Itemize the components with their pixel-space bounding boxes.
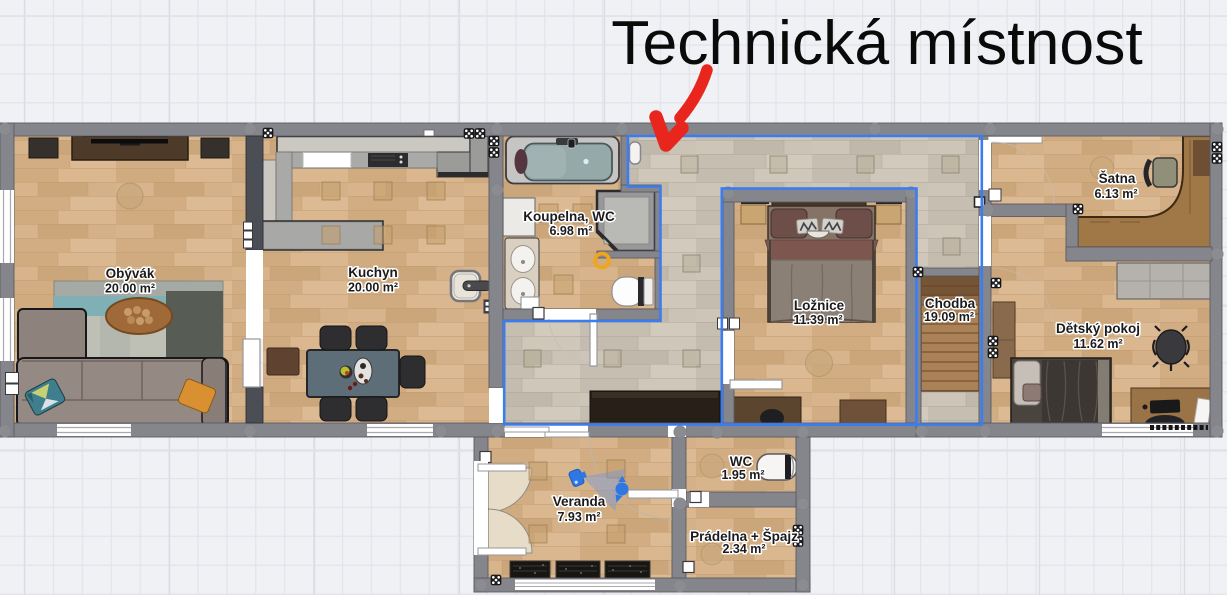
svg-text:11.62 m²: 11.62 m² [1073, 337, 1122, 351]
svg-text:Koupelna, WC: Koupelna, WC [523, 209, 615, 224]
svg-text:20.00 m²: 20.00 m² [348, 281, 398, 295]
svg-text:6.13 m²: 6.13 m² [1094, 187, 1137, 201]
svg-text:2.34 m²: 2.34 m² [722, 542, 765, 556]
svg-text:11.39 m²: 11.39 m² [793, 313, 842, 327]
svg-text:7.93 m²: 7.93 m² [557, 510, 600, 524]
svg-text:20.00 m²: 20.00 m² [105, 282, 155, 296]
svg-text:Chodba: Chodba [925, 296, 976, 311]
svg-text:Kuchyn: Kuchyn [348, 265, 398, 280]
svg-text:Technická místnost: Technická místnost [611, 8, 1142, 78]
svg-text:Obývák: Obývák [106, 266, 155, 281]
svg-text:19.09 m²: 19.09 m² [924, 310, 974, 324]
svg-text:Šatna: Šatna [1099, 171, 1136, 186]
svg-text:Dětský pokoj: Dětský pokoj [1056, 321, 1140, 336]
svg-text:Ložnice: Ložnice [794, 298, 845, 313]
svg-text:Veranda: Veranda [553, 494, 606, 509]
svg-text:WC: WC [730, 454, 753, 469]
svg-text:6.98 m²: 6.98 m² [549, 224, 592, 238]
svg-text:1.95 m²: 1.95 m² [721, 468, 764, 482]
